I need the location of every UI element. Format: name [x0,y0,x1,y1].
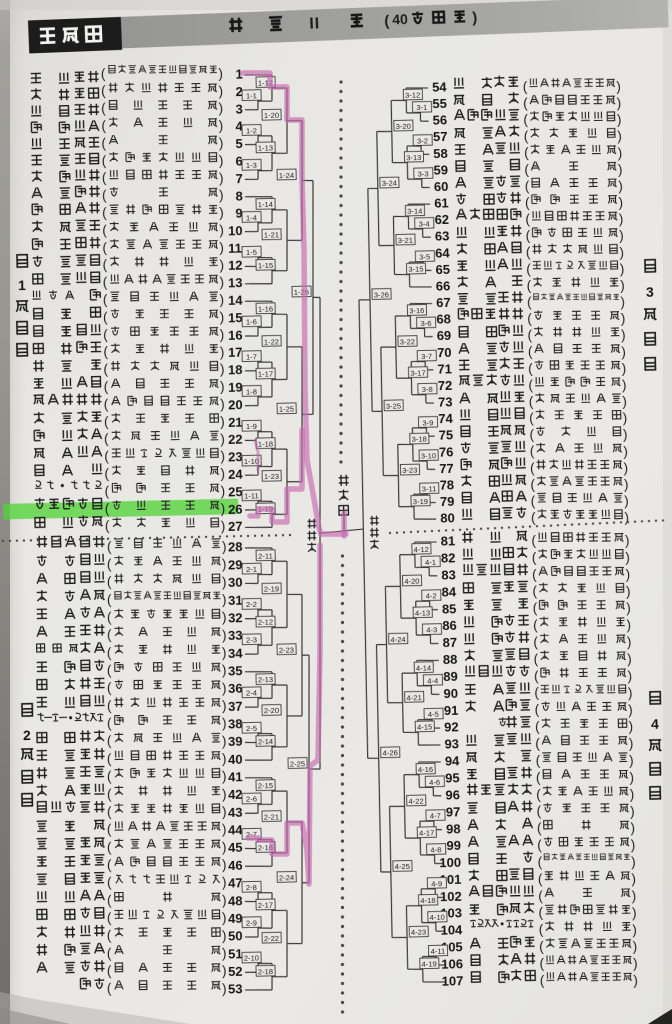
svg-text:54: 54 [432,79,448,94]
svg-text:30: 30 [228,575,243,590]
svg-text:(: ( [525,178,530,193]
svg-text:2-9: 2-9 [246,918,257,927]
svg-text:33: 33 [228,628,243,643]
svg-text:2-6: 2-6 [246,795,257,804]
svg-text:4-23: 4-23 [411,928,426,937]
svg-text:36: 36 [228,681,243,696]
svg-text:(: ( [103,344,108,359]
svg-text:): ) [627,634,632,649]
svg-text:1-21: 1-21 [264,230,279,239]
svg-text:4-8: 4-8 [430,845,441,854]
svg-text:): ) [632,888,637,903]
svg-text:(: ( [103,310,108,325]
svg-text:(: ( [102,188,107,203]
svg-text:85: 85 [442,601,457,616]
svg-text:4-19: 4-19 [421,959,436,968]
svg-text:1-22: 1-22 [264,337,279,346]
svg-text:(: ( [530,460,535,475]
svg-text:2-18: 2-18 [258,967,273,976]
svg-text:): ) [222,804,227,819]
svg-text:1-13: 1-13 [258,143,273,152]
svg-text:41: 41 [228,769,243,784]
svg-text:92: 92 [444,719,459,734]
svg-text:(: ( [104,449,109,464]
svg-text:3-17: 3-17 [410,368,425,377]
svg-text:2-1: 2-1 [246,565,257,574]
svg-text:4-12: 4-12 [414,545,429,554]
svg-text:(: ( [105,501,110,516]
svg-text:): ) [220,466,225,481]
svg-text:98: 98 [446,821,461,836]
svg-text:(: ( [101,136,106,151]
svg-text:69: 69 [437,328,452,343]
svg-text:4-26: 4-26 [382,748,397,757]
svg-text:17: 17 [228,345,243,360]
svg-text:1-5: 1-5 [246,248,257,257]
svg-text:(: ( [523,79,528,94]
svg-text:3-12: 3-12 [405,91,420,100]
svg-text:(: ( [526,245,531,260]
svg-text:2-22: 2-22 [264,934,279,943]
svg-text:4-6: 4-6 [429,778,440,787]
svg-text:(: ( [107,751,112,766]
svg-text:): ) [622,377,627,392]
svg-text:(: ( [101,118,106,133]
svg-text:): ) [220,379,225,394]
svg-text:(: ( [524,162,529,177]
svg-text:1-4: 1-4 [246,213,257,222]
svg-text:3-7: 3-7 [421,352,432,361]
svg-text:76: 76 [439,444,454,459]
svg-text:): ) [617,129,622,144]
svg-text:(: ( [532,584,537,599]
svg-text:): ) [220,344,225,359]
svg-text:5: 5 [235,136,243,151]
svg-text:): ) [219,170,224,185]
svg-text:64: 64 [435,245,451,260]
svg-text:2-8: 2-8 [246,883,257,892]
svg-text:4-17: 4-17 [419,828,434,837]
svg-text:(: ( [524,129,529,144]
svg-text:): ) [628,685,633,700]
svg-text:3-20: 3-20 [396,122,411,131]
svg-text:3-24: 3-24 [382,179,397,188]
svg-text:): ) [632,922,637,937]
svg-text:): ) [222,733,227,748]
svg-text:4-16: 4-16 [418,765,433,774]
svg-text:): ) [623,427,628,442]
svg-text:78: 78 [439,477,454,492]
svg-text:): ) [218,101,223,116]
svg-text:(: ( [539,939,544,954]
svg-text:(: ( [539,922,544,937]
svg-text:(: ( [101,101,106,116]
svg-text:): ) [619,228,624,243]
svg-text:2-12: 2-12 [258,618,273,627]
svg-text:2-14: 2-14 [258,737,273,746]
svg-text:): ) [222,839,227,854]
svg-text:(: ( [525,195,530,210]
svg-text:(: ( [533,634,538,649]
svg-text:4-20: 4-20 [404,577,419,586]
svg-text:): ) [616,79,621,94]
svg-text:(: ( [103,292,108,307]
svg-text:): ) [626,584,631,599]
svg-text:60: 60 [434,179,449,194]
svg-text:): ) [633,956,638,971]
svg-text:35: 35 [228,663,243,678]
svg-text:(: ( [523,95,528,110]
svg-text:7: 7 [235,171,243,186]
svg-text:(: ( [529,410,534,425]
svg-text:99: 99 [446,838,461,853]
svg-text:107: 107 [442,973,464,988]
svg-text:): ) [222,928,227,943]
svg-text:42: 42 [228,787,243,802]
svg-text:2-24: 2-24 [279,873,294,882]
svg-text:(: ( [103,362,108,377]
svg-text:): ) [631,837,636,852]
svg-text:): ) [222,645,227,660]
svg-text:(: ( [536,787,541,802]
svg-text:): ) [219,153,224,168]
svg-text:): ) [222,663,227,678]
svg-text:1-8: 1-8 [246,387,257,396]
svg-text:(: ( [104,466,109,481]
svg-text:): ) [472,9,478,26]
svg-text:): ) [219,309,224,324]
svg-text:): ) [625,550,630,565]
svg-text:(: ( [528,344,533,359]
svg-text:72: 72 [438,378,453,393]
svg-text:3-15: 3-15 [408,265,423,274]
svg-text:93: 93 [444,736,459,751]
svg-text:1-1: 1-1 [246,91,257,100]
svg-text:56: 56 [432,113,447,128]
svg-text:1-14: 1-14 [258,200,273,209]
svg-text:3-16: 3-16 [409,306,424,315]
svg-text:14: 14 [228,293,244,308]
svg-text:(: ( [534,702,539,717]
svg-text:(: ( [105,518,110,533]
svg-text:79: 79 [440,494,455,509]
svg-text:(: ( [107,875,112,890]
svg-text:): ) [219,188,224,203]
svg-text:3-26: 3-26 [374,290,389,299]
svg-text:): ) [622,394,627,409]
svg-text:(: ( [530,444,535,459]
svg-text:4-18: 4-18 [420,896,435,905]
svg-text:22: 22 [228,432,243,447]
svg-text:1-11: 1-11 [244,491,259,500]
svg-text:): ) [222,716,227,731]
svg-text:3-23: 3-23 [402,466,417,475]
svg-text:3-13: 3-13 [406,153,421,162]
svg-text:4-21: 4-21 [406,693,421,702]
svg-text:4-7: 4-7 [430,811,441,820]
svg-text:): ) [623,460,628,475]
svg-text:(: ( [535,736,540,751]
svg-text:(: ( [107,645,112,660]
svg-text:16: 16 [228,327,243,342]
svg-text:): ) [219,118,224,133]
svg-text:(: ( [103,327,108,342]
svg-text:(: ( [107,822,112,837]
svg-text:): ) [618,178,623,193]
svg-text:3-1: 3-1 [416,103,427,112]
svg-text:): ) [222,822,227,837]
svg-text:): ) [221,518,226,533]
svg-text:8: 8 [235,188,243,203]
svg-text:(: ( [107,574,112,589]
svg-text:): ) [218,66,223,81]
svg-text:47: 47 [228,875,243,890]
svg-text:): ) [222,751,227,766]
svg-text:): ) [622,361,627,376]
svg-text:2-4: 2-4 [246,688,257,697]
svg-text:2: 2 [23,727,31,743]
svg-text:(: ( [102,257,107,272]
svg-text:83: 83 [441,567,456,582]
svg-text:): ) [618,162,623,177]
svg-text:4-1: 4-1 [425,558,436,567]
svg-text:59: 59 [433,162,448,177]
svg-text:(: ( [107,592,112,607]
svg-text:): ) [219,135,224,150]
svg-text:11: 11 [228,240,242,255]
svg-text:(: ( [107,769,112,784]
svg-text:): ) [624,493,629,508]
svg-text:(: ( [534,685,539,700]
svg-text:1-25: 1-25 [279,404,294,413]
svg-text:(: ( [536,753,541,768]
svg-text:): ) [222,698,227,713]
svg-text:): ) [222,963,227,978]
svg-text:2-10: 2-10 [244,954,259,963]
svg-text:): ) [621,328,626,343]
svg-text:): ) [630,804,635,819]
svg-text:(: ( [107,610,112,625]
svg-text:1-23: 1-23 [264,472,279,481]
svg-text:84: 84 [441,584,457,599]
svg-text:27: 27 [228,519,243,534]
svg-text:): ) [222,892,227,907]
svg-text:2-2: 2-2 [246,600,257,609]
svg-text:2-5: 2-5 [246,724,257,733]
svg-text:87: 87 [442,635,457,650]
svg-text:(: ( [102,223,107,238]
svg-text:(: ( [527,294,532,309]
svg-text:): ) [219,205,224,220]
svg-text:(: ( [107,627,112,642]
svg-text:(: ( [527,311,532,326]
svg-text:81: 81 [441,533,456,548]
svg-text:3-8: 3-8 [422,385,433,394]
svg-text:(: ( [538,888,543,903]
svg-text:(: ( [533,601,538,616]
svg-text:4-10: 4-10 [430,913,445,922]
svg-text:53: 53 [228,981,243,996]
svg-text:(: ( [107,804,112,819]
svg-text:106: 106 [441,956,463,971]
svg-text:(: ( [528,361,533,376]
svg-text:(: ( [537,821,542,836]
svg-text:3-3: 3-3 [418,169,429,178]
svg-text:): ) [222,680,227,695]
svg-text:): ) [222,946,227,961]
svg-text:3-25: 3-25 [386,401,401,410]
svg-text:3-14: 3-14 [407,207,422,216]
svg-text:65: 65 [435,262,450,277]
svg-text:18: 18 [228,362,243,377]
svg-text:): ) [628,702,633,717]
svg-text:15: 15 [228,310,243,325]
svg-text:): ) [219,292,224,307]
svg-text:3-9: 3-9 [422,418,433,427]
svg-text:4-15: 4-15 [417,722,432,731]
svg-text:(: ( [107,716,112,731]
svg-text:): ) [625,533,630,548]
svg-text:(: ( [526,278,531,293]
svg-text:3: 3 [646,284,654,300]
svg-text:): ) [220,397,225,412]
svg-text:): ) [617,96,622,111]
svg-text:26: 26 [228,501,243,516]
svg-text:45: 45 [228,840,243,855]
svg-text:(: ( [529,394,534,409]
svg-text:): ) [220,484,225,499]
svg-text:): ) [219,275,224,290]
svg-text:38: 38 [228,716,243,731]
svg-text:62: 62 [434,212,449,227]
svg-text:73: 73 [438,394,453,409]
svg-text:(: ( [107,680,112,695]
svg-text:91: 91 [444,703,459,718]
svg-text:3: 3 [235,101,243,116]
svg-text:(: ( [539,956,544,971]
svg-text:2-21: 2-21 [264,812,279,821]
svg-text:): ) [222,769,227,784]
svg-text:40: 40 [228,751,243,766]
svg-text:52: 52 [228,964,243,979]
svg-text:3-10: 3-10 [421,451,436,460]
svg-text:): ) [222,857,227,872]
svg-text:1-17: 1-17 [258,370,273,379]
svg-text:): ) [220,449,225,464]
svg-text:94: 94 [445,753,461,768]
svg-text:(: ( [107,928,112,943]
svg-text:4-9: 4-9 [431,879,442,888]
svg-text:4-4: 4-4 [427,676,438,685]
svg-text:): ) [617,145,622,160]
svg-text:68: 68 [436,311,451,326]
svg-text:20: 20 [228,397,243,412]
svg-text:49: 49 [228,911,243,926]
svg-text:37: 37 [228,698,243,713]
svg-text:): ) [222,557,227,572]
svg-text:): ) [222,910,227,925]
svg-text:(: ( [527,328,532,343]
svg-text:23: 23 [228,449,243,464]
svg-text:66: 66 [436,278,451,293]
svg-text:80: 80 [440,510,455,525]
svg-text:(: ( [537,837,542,852]
svg-text:(: ( [107,539,112,554]
svg-text:1-9: 1-9 [246,422,257,431]
svg-text:): ) [627,651,632,666]
svg-text:): ) [220,362,225,377]
svg-text:): ) [620,294,625,309]
svg-text:(: ( [531,493,536,508]
svg-text:(: ( [102,205,107,220]
svg-text:(: ( [538,871,543,886]
svg-text:3-11: 3-11 [422,484,437,493]
svg-text:(: ( [540,973,545,988]
svg-text:): ) [222,539,227,554]
svg-text:): ) [633,973,638,988]
svg-text:): ) [631,871,636,886]
svg-text:4-13: 4-13 [415,608,430,617]
svg-text:): ) [220,327,225,342]
svg-text:4-24: 4-24 [390,635,405,644]
svg-text:): ) [222,786,227,801]
svg-text:(: ( [534,651,539,666]
svg-text:3-19: 3-19 [413,497,428,506]
svg-text:71: 71 [437,361,452,376]
svg-text:1-16: 1-16 [258,304,273,313]
svg-text:61: 61 [434,195,449,210]
svg-text:): ) [620,261,625,276]
svg-text:): ) [623,444,628,459]
svg-text:(: ( [107,857,112,872]
svg-text:2-13: 2-13 [258,675,273,684]
svg-text:(: ( [101,153,106,168]
svg-text:): ) [624,477,629,492]
svg-text:(: ( [101,66,106,81]
svg-text:100: 100 [439,855,461,870]
svg-text:): ) [221,501,226,516]
svg-text:): ) [220,431,225,446]
svg-text:1-2: 1-2 [246,126,257,135]
svg-text:2-15: 2-15 [258,781,273,790]
svg-text:): ) [632,939,637,954]
svg-text:2-3: 2-3 [246,635,257,644]
svg-text:): ) [617,112,622,127]
svg-text:3-5: 3-5 [419,252,430,261]
svg-text:(: ( [532,550,537,565]
svg-text:): ) [620,278,625,293]
svg-text:(: ( [104,484,109,499]
svg-text:2-25: 2-25 [290,759,305,768]
svg-text:32: 32 [228,610,243,625]
svg-text:4-5: 4-5 [428,710,439,719]
svg-text:): ) [632,905,637,920]
svg-text:(: ( [531,510,536,525]
svg-text:): ) [627,668,632,683]
svg-text:2-23: 2-23 [279,645,294,654]
svg-text:51: 51 [228,946,243,961]
svg-text:): ) [628,719,633,734]
svg-text:3-4: 3-4 [418,219,429,228]
svg-text:2-20: 2-20 [264,706,279,715]
svg-text:): ) [618,195,623,210]
svg-text:96: 96 [445,787,460,802]
svg-text:3-22: 3-22 [400,337,415,346]
svg-text:(: ( [535,719,540,734]
svg-text:(: ( [107,786,112,801]
svg-text:): ) [619,245,624,260]
svg-text:82: 82 [441,550,456,565]
